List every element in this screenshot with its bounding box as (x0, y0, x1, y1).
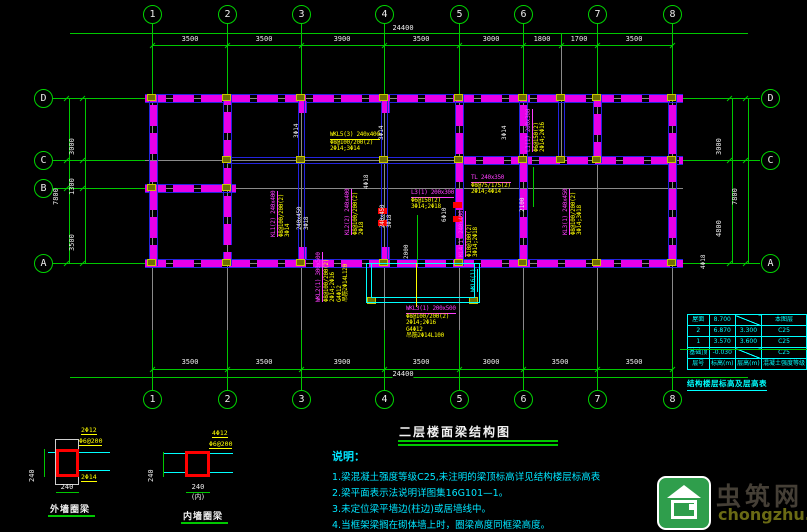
detail-caption: 外墙圈梁 (50, 502, 90, 515)
grid-line-v (301, 24, 302, 95)
dim-text: 3000 (483, 359, 500, 366)
column-marker (518, 259, 527, 266)
stirrup-label: Φ6@200 (209, 441, 232, 449)
table-cell: 6.870 (709, 326, 735, 337)
rebar-label: 2Φ12 (81, 427, 97, 435)
column-marker (147, 94, 156, 101)
axis-bubble-top-8: 8 (663, 5, 682, 24)
grid-line-h (683, 263, 760, 264)
dim-line (152, 45, 672, 46)
table-cell: 标高(m) (709, 359, 735, 370)
column-marker (222, 156, 231, 163)
beam-label-line: 3Φ18 (304, 217, 310, 230)
rebar-mark: 2100 (519, 198, 526, 212)
detail-caption: 内墙圈梁 (183, 509, 223, 522)
axis-bubble-left-D: D (34, 89, 53, 108)
beam-edge-lines (227, 157, 459, 164)
column-marker (222, 94, 231, 101)
beam-label-line: KL2(2) 240x400 (345, 189, 352, 235)
grid-line-v (152, 330, 153, 390)
beam-label-line: 3Φ18 (387, 215, 393, 228)
column-marker (296, 259, 305, 266)
rebar-mark: 4Φ18 (700, 255, 707, 269)
axis-bubble-bottom-3: 3 (292, 390, 311, 409)
axis-bubble-top-3: 3 (292, 5, 311, 24)
beam-label-line: 2Φ18 (359, 222, 365, 235)
dim-text: 3900 (334, 36, 351, 43)
beam-vertical (223, 95, 232, 245)
beam-label-kl3: KL3(1) 240x450Φ8@100/200(2)3Φ14;3Φ18 (570, 234, 571, 235)
axis-bubble-bottom-1: 1 (143, 390, 162, 409)
column-marker (379, 156, 388, 163)
note-item-3: 3.未定位梁平墙边(柱边)或居墙线中。 (332, 502, 600, 518)
axis-bubble-left-C: C (34, 151, 53, 170)
column-marker (147, 259, 156, 266)
column-marker (454, 94, 463, 101)
table-cell: 屋面 (688, 315, 710, 326)
beam-vertical (149, 95, 158, 266)
beam-label-l3: L3(1) 200x300Φ6@150(2)3Φ14;2Φ18 (411, 190, 454, 211)
axis-bubble-bottom-7: 7 (588, 390, 607, 409)
rebar-label: 2Φ14 (81, 474, 97, 482)
grid-line-v (523, 330, 524, 390)
grid-line-v (227, 330, 228, 390)
beam-label-line: 3Φ14;2Φ18 (411, 204, 454, 211)
column-marker (518, 156, 527, 163)
column-marker (147, 184, 156, 191)
grid-line-v (672, 330, 673, 390)
column-marker (667, 156, 676, 163)
axis-bubble-top-5: 5 (450, 5, 469, 24)
rebar-mark: 2000 (403, 245, 410, 259)
note-item-2: 2.梁平面表示法说明详图集16G101—1。 (332, 486, 600, 502)
slab-line (79, 470, 110, 471)
column-marker (454, 156, 463, 163)
hanger-bar-mark (453, 202, 462, 208)
axis-bubble-top-1: 1 (143, 5, 162, 24)
beam-label-line: 3Φ14 (285, 224, 291, 237)
beam-label-line: 吊筋2Φ14L120 (343, 264, 349, 302)
cad-drawing-canvas: 二层楼面梁结构图 说明： 1.梁混凝土强度等级C25,未注明的梁顶标高详见结构楼… (0, 0, 807, 532)
table-cell: 3.570 (709, 337, 735, 348)
dim-text: 3500 (626, 359, 643, 366)
table-cell: 3.300 (735, 326, 761, 337)
rebar-mark: 3Φ14 (501, 126, 508, 140)
beam-edge-lines (558, 98, 565, 160)
dim-text: 3500 (413, 359, 430, 366)
table-cell: 1 (688, 337, 710, 348)
dim-line (70, 33, 748, 34)
axis-bubble-right-C: C (761, 151, 780, 170)
table-cell: 3.600 (735, 337, 761, 348)
table-cell: 层高(m) (735, 359, 761, 370)
beam-label-line: L1(1) 200x300 (526, 109, 533, 152)
beam-label-wkl2: WKL2(1) 300x500Φ8@100/200(2)2Φ14;2Φ16G4Φ… (323, 301, 324, 302)
rebar-label: 4Φ12 (212, 430, 228, 438)
note-item-4: 4.当框架梁搁在砌体墙上时，圈梁高度同框梁高度。 (332, 518, 600, 532)
dim-text: 3000 (483, 36, 500, 43)
column-marker (518, 94, 527, 101)
drawing-title: 二层楼面梁结构图 (399, 423, 511, 440)
beam-section (56, 449, 79, 477)
beam-label-line: 2Φ14;3Φ14 (330, 146, 380, 153)
table-cell: 本图层 (761, 315, 806, 326)
column-marker (667, 94, 676, 101)
dim-total-right: 7800 (732, 188, 739, 205)
grid-line-v (597, 330, 598, 390)
dim-text: 1700 (571, 36, 588, 43)
grid-line-v (384, 330, 385, 390)
dim-240-h: 240 (192, 484, 205, 491)
title-underline (398, 440, 558, 442)
table-cell: 混凝土强度等级 (761, 359, 806, 370)
grid-line-v (523, 24, 524, 95)
grid-line-v (384, 24, 385, 95)
notes-heading: 说明： (332, 448, 600, 464)
notes-block: 说明： 1.梁混凝土强度等级C25,未注明的梁顶标高详见结构楼层标高表2.梁平面… (332, 448, 600, 532)
axis-bubble-top-2: 2 (218, 5, 237, 24)
grid-line-v (459, 330, 460, 390)
grid-line-v (459, 24, 460, 95)
grid-line-v (227, 24, 228, 95)
dim-240-h: 240 (61, 484, 74, 491)
column-marker (222, 184, 231, 191)
dim-text-left: 1300 (69, 178, 76, 195)
beam-label-line: WKL2(1) 300x500 (316, 252, 323, 302)
house-roof (667, 485, 701, 498)
column-marker (556, 94, 565, 101)
dim-240-v: 240 (29, 469, 36, 482)
beam-horizontal (455, 156, 683, 165)
table-cell (735, 315, 761, 326)
column-marker (592, 94, 601, 101)
axis-bubble-right-D: D (761, 89, 780, 108)
dim-text: 3500 (256, 36, 273, 43)
dim-line (85, 98, 86, 263)
table-cell: C25 (761, 337, 806, 348)
opening-dim-line (417, 215, 418, 263)
grid-line-v (152, 24, 153, 95)
beam-label-tl: TL 240x350Φ8@75/175(2)2Φ14;4Φ14 (471, 175, 511, 196)
beam-section (185, 451, 210, 477)
beam-label-line: KL3(1) 240x450 (563, 189, 570, 235)
grid-line-v (597, 24, 598, 95)
dim-text-left: 3500 (69, 234, 76, 251)
column-marker (556, 156, 565, 163)
watermark-url: chongzhu.cn (718, 505, 807, 524)
stirrup-label: Φ6@200 (79, 438, 102, 446)
beam-label-sec2: 240x4503Φ18 (386, 227, 387, 228)
dim-text: 3500 (182, 36, 199, 43)
axis-bubble-bottom-6: 6 (514, 390, 533, 409)
dim-line (732, 98, 733, 263)
beam-label-line: KL1(2) 240x400 (271, 191, 278, 237)
axis-bubble-right-A: A (761, 254, 780, 273)
beam-label-wkl6: WKL6(1) (478, 291, 479, 292)
column-marker (222, 259, 231, 266)
balcony-outline-inner (371, 263, 475, 298)
dim-line (680, 349, 807, 350)
column-marker (296, 94, 305, 101)
dim-text: 1800 (534, 36, 551, 43)
beam-label-line: 吊筋2Φ14L100 (406, 333, 456, 340)
beam-vertical (668, 95, 677, 266)
rebar-mark: 3Φ14 (293, 124, 300, 138)
dim-suffix: (内) (192, 494, 204, 501)
dim-total-left: 7800 (53, 188, 60, 205)
title-underline-2 (398, 444, 558, 446)
beam-label-line: WKL6(1) (471, 269, 478, 292)
beam-label-line: 3Φ14;3Φ18 (577, 205, 583, 235)
logo-house-icon (657, 476, 711, 530)
dim-text-right: 3000 (716, 138, 723, 155)
column-marker (592, 156, 601, 163)
beam-label-kl4: KL4(1) 240x400Φ10@100(2)3Φ14;2Φ18 (466, 256, 467, 257)
axis-bubble-left-B: B (34, 179, 53, 198)
dim-240-v: 240 (148, 469, 155, 482)
table-cell: 层号 (688, 359, 710, 370)
axis-bubble-left-A: A (34, 254, 53, 273)
dim-text: 3500 (182, 359, 199, 366)
beam-label-line: KL4(1) 240x400 (459, 211, 466, 257)
column-marker (667, 259, 676, 266)
dim-text: 3900 (334, 359, 351, 366)
beam-label-line: 3Φ14;2Φ18 (473, 227, 479, 257)
axis-bubble-top-4: 4 (375, 5, 394, 24)
rebar-mark: 4Φ18 (363, 175, 370, 189)
beam-label-kl1: KL1(2) 240x400Φ8@100/200(2)3Φ14 (278, 236, 279, 237)
column-marker (379, 94, 388, 101)
table-cell: 8.700 (709, 315, 735, 326)
column-marker (296, 156, 305, 163)
dim-text-right: 4800 (716, 220, 723, 237)
axis-bubble-bottom-4: 4 (375, 390, 394, 409)
grid-line-v (301, 330, 302, 390)
beam-vertical (593, 95, 602, 163)
beam-label-kl2: KL2(2) 240x400Φ8@100/200(2)2Φ18 (352, 234, 353, 235)
table-caption: 结构楼层标高及层高表 (687, 378, 767, 391)
beam-label-wkl5: WKL5(3) 240x400Φ8@100/200(2)2Φ14;3Φ14 (330, 132, 380, 153)
opening-dim-line (533, 167, 534, 207)
dim-text: 3500 (626, 36, 643, 43)
beam-edge-lines (381, 98, 388, 263)
grid-line-v (672, 24, 673, 95)
table-cell: 2 (688, 326, 710, 337)
dim-text-left: 3000 (69, 138, 76, 155)
dim-text: 3500 (552, 359, 569, 366)
beam-label-line: 2Φ14;4Φ14 (471, 189, 511, 196)
dim-line (748, 98, 749, 263)
axis-bubble-bottom-2: 2 (218, 390, 237, 409)
dim-text: 3500 (256, 359, 273, 366)
dim-text: 3500 (413, 36, 430, 43)
beam-label-l1: L1(1) 200x300Φ6@150(2)2Φ14;2Φ16 (533, 151, 534, 152)
floor-elevation-table: 屋面8.700本图层26.8703.300C2513.5703.600C25基础… (687, 314, 807, 370)
house-window (689, 504, 695, 510)
axis-bubble-top-7: 7 (588, 5, 607, 24)
beam-label-sec1: 240x4503Φ18 (303, 229, 304, 230)
label-leader-line (416, 263, 417, 307)
beam-label-wkl3: WKL3(1) 200x500Φ8@100/200(2)2Φ14;2Φ16G4Φ… (406, 306, 456, 340)
axis-bubble-bottom-8: 8 (663, 390, 682, 409)
dim-total-top: 24400 (392, 25, 413, 32)
dim-total-bottom: 24400 (392, 371, 413, 378)
note-item-1: 1.梁混凝土强度等级C25,未注明的梁顶标高详见结构楼层标高表 (332, 470, 600, 486)
column-marker (592, 259, 601, 266)
axis-bubble-bottom-5: 5 (450, 390, 469, 409)
beam-label-line: 2Φ14;2Φ16 (540, 122, 546, 152)
table-cell: C25 (761, 326, 806, 337)
axis-bubble-top-6: 6 (514, 5, 533, 24)
